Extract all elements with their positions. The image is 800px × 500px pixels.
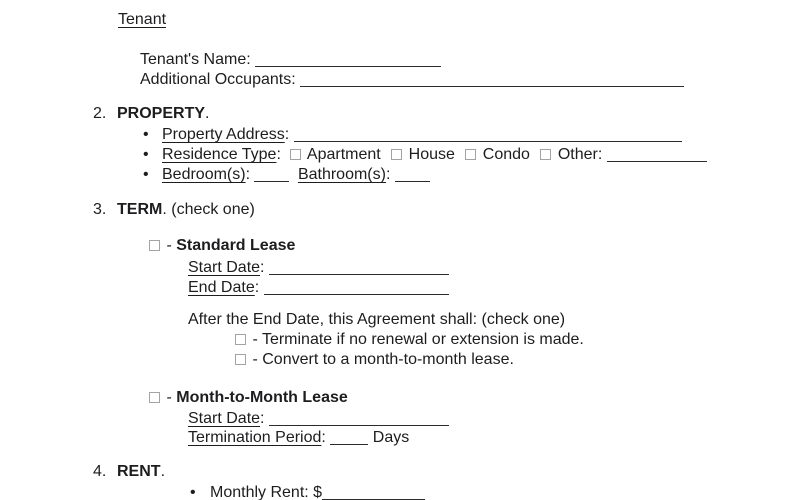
rent-section-number: 4. [93,462,117,482]
terminate-option-label: Terminate if no renewal or extension is … [262,331,584,348]
tenants-name-blank[interactable] [255,64,441,67]
colon: : [321,429,325,446]
property-address-blank[interactable] [294,139,682,142]
colon: : [291,71,295,88]
month-to-month-checkbox[interactable] [149,392,160,403]
property-section-number: 2. [93,104,117,124]
tenants-name-line: Tenant's Name: [140,50,441,70]
house-checkbox[interactable] [391,149,402,160]
colon: : [246,51,250,68]
property-address-label: Property Address [162,126,285,143]
mtm-start-date-blank[interactable] [269,423,449,426]
dash: - [252,351,257,368]
after-end-date-clause: After the End Date, this Agreement shall… [188,310,565,330]
term-instruction: (check one) [171,201,255,218]
colon: : [598,146,602,163]
bullet-icon: • [143,165,162,185]
bullet-icon: • [143,125,162,145]
convert-option-label: Convert to a month-to-month lease. [262,351,514,368]
residence-type-line: •Residence Type: Apartment House Condo O… [143,145,707,165]
termination-period-blank[interactable] [330,442,368,445]
dollar-sign: $ [313,484,322,500]
condo-option-label: Condo [483,146,530,163]
tenants-name-label: Tenant's Name [140,51,246,68]
termination-period-line: Termination Period: Days [188,428,409,448]
standard-lease-line: - Standard Lease [147,236,295,256]
colon: : [260,259,264,276]
property-section-title: PROPERTY [117,105,205,122]
terminate-option-line: - Terminate if no renewal or extension i… [233,330,584,350]
rent-section-header: 4.RENT. [93,462,165,482]
start-date-label: Start Date [188,259,260,276]
apartment-checkbox[interactable] [290,149,301,160]
other-residence-blank[interactable] [607,159,707,162]
terminate-option-checkbox[interactable] [235,334,246,345]
house-option-label: House [409,146,455,163]
term-section-title: TERM [117,201,162,218]
bedrooms-blank[interactable] [254,179,289,182]
condo-checkbox[interactable] [465,149,476,160]
property-section-header: 2.PROPERTY. [93,104,209,124]
termination-period-label: Termination Period [188,429,321,446]
standard-lease-label: Standard Lease [176,237,295,254]
bathrooms-blank[interactable] [395,179,430,182]
colon: : [276,146,280,163]
dash: - [166,237,171,254]
period: . [161,463,165,480]
tenant-heading: Tenant [118,10,166,30]
term-section-number: 3. [93,200,117,220]
convert-option-checkbox[interactable] [235,354,246,365]
dash: - [252,331,257,348]
standard-end-date-blank[interactable] [264,292,449,295]
dash: - [166,389,171,406]
other-checkbox[interactable] [540,149,551,160]
standard-end-date-line: End Date: [188,278,449,298]
standard-start-date-blank[interactable] [269,272,449,275]
property-address-line: •Property Address: [143,125,682,145]
colon: : [255,279,259,296]
monthly-rent-line: •Monthly Rent: $ [190,483,425,500]
bullet-icon: • [143,145,162,165]
other-option-label: Other [558,146,598,163]
lease-document-page: Tenant Tenant's Name: Additional Occupan… [0,0,800,500]
start-date-label: Start Date [188,410,260,427]
month-to-month-line: - Month-to-Month Lease [147,388,348,408]
additional-occupants-line: Additional Occupants: [140,70,684,90]
colon: : [246,166,250,183]
monthly-rent-label: Monthly Rent [210,484,304,500]
colon: : [285,126,289,143]
bullet-icon: • [190,483,210,500]
additional-occupants-label: Additional Occupants [140,71,291,88]
end-date-label: End Date [188,279,255,296]
bedrooms-label: Bedroom(s) [162,166,246,183]
residence-type-label: Residence Type [162,146,276,163]
colon: : [304,484,308,500]
mtm-start-date-line: Start Date: [188,409,449,429]
term-section-header: 3.TERM. (check one) [93,200,255,220]
rent-section-title: RENT [117,463,161,480]
standard-lease-checkbox[interactable] [149,240,160,251]
tenant-heading-label: Tenant [118,11,166,28]
colon: : [386,166,390,183]
period: . [162,201,166,218]
days-suffix: Days [373,429,409,446]
month-to-month-label: Month-to-Month Lease [176,389,348,406]
colon: : [260,410,264,427]
bathrooms-label: Bathroom(s) [298,166,386,183]
period: . [205,105,209,122]
apartment-option-label: Apartment [307,146,381,163]
convert-option-line: - Convert to a month-to-month lease. [233,350,514,370]
after-end-date-text: After the End Date, this Agreement shall… [188,311,565,328]
additional-occupants-blank[interactable] [300,84,684,87]
bedrooms-bathrooms-line: •Bedroom(s): Bathroom(s): [143,165,430,185]
standard-start-date-line: Start Date: [188,258,449,278]
